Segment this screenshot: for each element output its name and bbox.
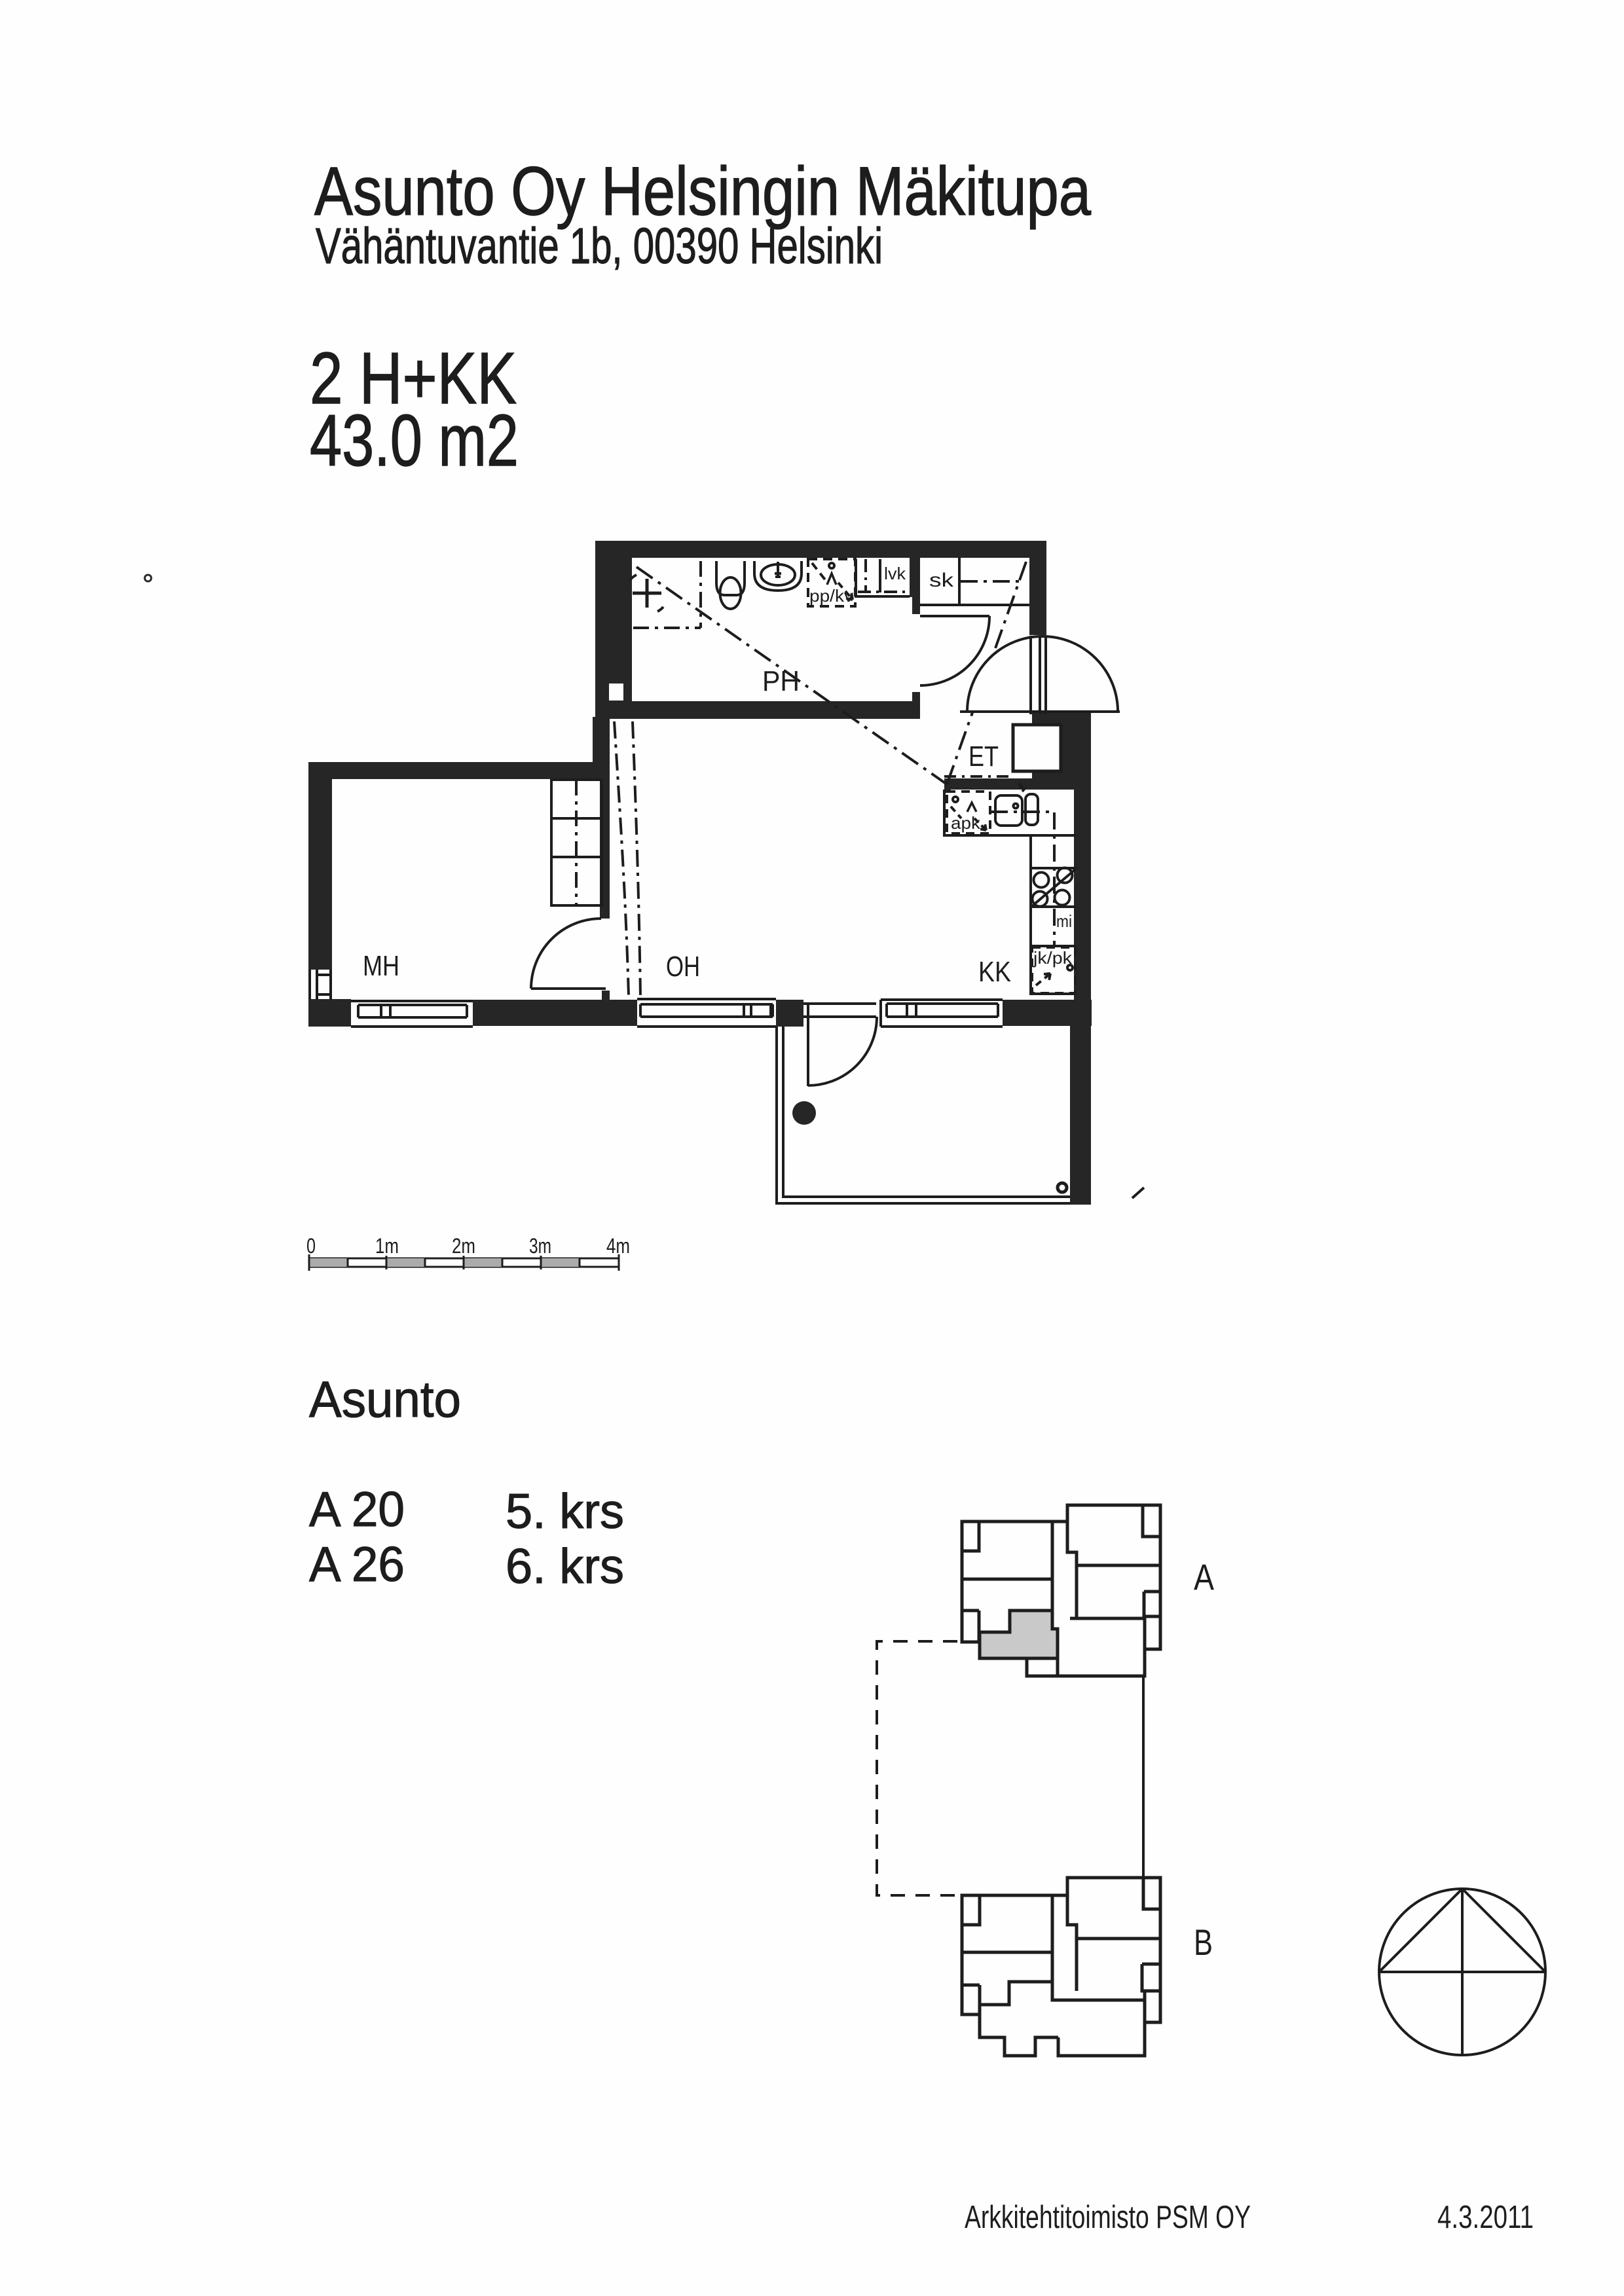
svg-text:OH: OH	[666, 951, 700, 983]
svg-text:jk/pk: jk/pk	[1033, 948, 1073, 968]
svg-text:Asunto: Asunto	[309, 1370, 461, 1428]
svg-text:4.3.2011: 4.3.2011	[1437, 2200, 1534, 2235]
svg-text:ET: ET	[969, 740, 999, 773]
svg-text:Vähäntuvantie 1b, 00390 Helsin: Vähäntuvantie 1b, 00390 Helsinki	[316, 218, 883, 274]
svg-text:sk: sk	[929, 570, 954, 591]
svg-text:6. krs: 6. krs	[506, 1539, 624, 1594]
svg-text:43.0 m2: 43.0 m2	[310, 400, 519, 481]
svg-text:A: A	[1194, 1556, 1215, 1597]
svg-text:4m: 4m	[606, 1234, 630, 1258]
svg-text:2m: 2m	[452, 1234, 475, 1258]
svg-text:mi: mi	[1056, 911, 1072, 931]
svg-text:A 26: A 26	[309, 1537, 405, 1592]
svg-text:B: B	[1194, 1922, 1213, 1963]
svg-text:A 20: A 20	[309, 1482, 405, 1537]
svg-text:pp/kv: pp/kv	[809, 586, 853, 606]
svg-text:Arkkitehtitoimisto PSM OY: Arkkitehtitoimisto PSM OY	[965, 2200, 1251, 2235]
svg-text:apk: apk	[951, 813, 981, 833]
svg-text:PH: PH	[762, 665, 800, 697]
svg-text:0: 0	[306, 1234, 316, 1258]
svg-text:lvk: lvk	[884, 564, 906, 583]
svg-text:3m: 3m	[529, 1234, 551, 1258]
svg-text:5. krs: 5. krs	[506, 1484, 624, 1539]
svg-text:KK: KK	[978, 956, 1011, 988]
svg-text:1m: 1m	[375, 1234, 399, 1258]
svg-text:MH: MH	[363, 950, 399, 982]
